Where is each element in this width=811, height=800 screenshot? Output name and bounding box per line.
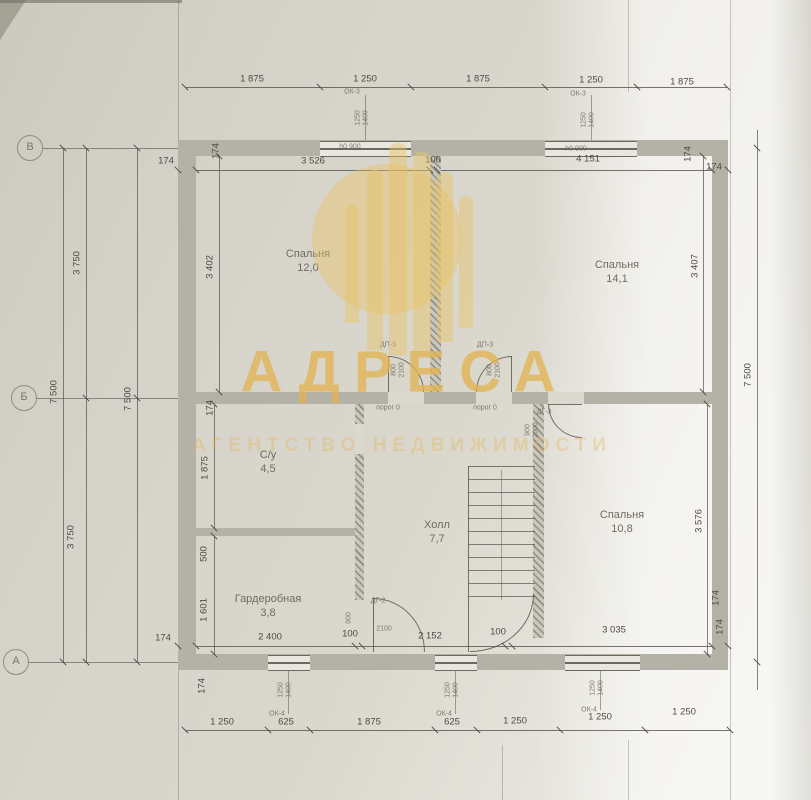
door-swing-arc xyxy=(548,404,582,438)
opening-annotation: h0 900 xyxy=(339,144,360,151)
dimension-label: 1 875 xyxy=(357,717,381,728)
opening-annotation: ОК-3 xyxy=(570,91,586,98)
room-name: Спальня xyxy=(595,258,639,272)
plan-line xyxy=(219,156,220,404)
plan-line xyxy=(86,148,87,662)
plan-line xyxy=(707,404,708,654)
room-name: Спальня xyxy=(600,508,644,522)
dimension-label: 3 526 xyxy=(301,156,325,167)
room-name: Холл xyxy=(424,518,450,532)
opening-annotation: ОК-4 xyxy=(581,707,597,714)
opening-annotation: ОК-3 xyxy=(344,89,360,96)
dimension-label: 3 407 xyxy=(690,254,701,278)
wall xyxy=(196,528,364,536)
dimension-label: 174 xyxy=(155,633,171,644)
plan-line xyxy=(178,646,728,647)
opening-annotation: 1250 xyxy=(581,112,588,128)
dimension-label: 174 xyxy=(158,156,174,167)
dimension-label: 1 250 xyxy=(672,707,696,718)
room-name: Гардеробная xyxy=(235,592,302,606)
dimension-label: 1 250 xyxy=(579,75,603,86)
dimension-label: 3 402 xyxy=(205,255,216,279)
room-area: 4,5 xyxy=(260,462,277,476)
room-label: Спальня10,8 xyxy=(600,508,644,536)
dimension-label: 174 xyxy=(205,400,216,416)
opening-annotation: 2100 xyxy=(376,626,392,633)
dimension-label: 1 875 xyxy=(466,74,490,85)
dimension-label: 625 xyxy=(444,717,460,728)
watermark-subtitle: АГЕНТСТВО НЕДВИЖИМОСТИ xyxy=(192,435,612,457)
room-area: 7,7 xyxy=(424,532,450,546)
plan-line xyxy=(185,87,727,88)
dimension-label: 1 875 xyxy=(240,74,264,85)
dimension-label: 3 750 xyxy=(72,251,83,275)
room-area: 10,8 xyxy=(600,522,644,536)
axis-marker: В xyxy=(17,135,43,161)
dimension-label: 1 250 xyxy=(503,716,527,727)
room-area: 3,8 xyxy=(235,606,302,620)
dimension-label: 1 601 xyxy=(199,598,210,622)
opening-annotation: 1400 xyxy=(286,682,293,698)
dimension-label: 7 500 xyxy=(123,387,134,411)
watermark-logo-bar xyxy=(389,143,407,355)
dimension-label: 174 xyxy=(706,162,722,173)
room-label: Спальня14,1 xyxy=(595,258,639,286)
watermark-logo-bar xyxy=(459,196,473,328)
plan-line xyxy=(178,170,728,171)
plan-line xyxy=(37,398,196,399)
dimension-label: 2 400 xyxy=(258,632,282,643)
opening-annotation: порог 0 xyxy=(376,405,400,412)
plan-line xyxy=(730,0,731,800)
opening-annotation: 1400 xyxy=(453,682,460,698)
dimension-label: 174 xyxy=(211,143,222,159)
dimension-label: 174 xyxy=(715,619,726,635)
watermark-logo-bar xyxy=(437,172,453,342)
dimension-label: 3 035 xyxy=(602,625,626,636)
plan-line xyxy=(703,156,704,392)
opening-annotation: 1400 xyxy=(598,680,605,696)
plan-line xyxy=(628,0,629,92)
plan-line xyxy=(757,130,758,690)
opening-annotation: ОК-4 xyxy=(269,711,285,718)
wall xyxy=(178,140,728,156)
opening-annotation: 1250 xyxy=(590,680,597,696)
plan-line xyxy=(63,148,64,662)
dimension-label: 1 250 xyxy=(353,74,377,85)
plan-line xyxy=(137,148,138,662)
dimension-label: 100 xyxy=(342,629,358,640)
dimension-label: 2 152 xyxy=(418,631,442,642)
opening-annotation: порог 0 xyxy=(473,405,497,412)
window xyxy=(565,655,640,671)
opening-annotation: 1400 xyxy=(589,112,596,128)
opening-annotation: 1250 xyxy=(445,682,452,698)
opening-annotation: 900 xyxy=(346,612,353,624)
watermark-logo-bar xyxy=(413,152,431,352)
dimension-label: 1 875 xyxy=(200,456,211,480)
room-label: Гардеробная3,8 xyxy=(235,592,302,620)
dimension-label: 7 500 xyxy=(49,380,60,404)
opening-annotation: 1250 xyxy=(278,682,285,698)
staircase xyxy=(468,466,535,607)
plan-line xyxy=(29,662,178,663)
opening-annotation: 1250 xyxy=(355,110,362,126)
window xyxy=(435,655,477,671)
window xyxy=(268,655,310,671)
dimension-label: 625 xyxy=(278,717,294,728)
dimension-label: 4 151 xyxy=(576,154,600,165)
plan-line xyxy=(502,745,503,800)
opening-annotation: ДГ-3 xyxy=(537,409,552,416)
dimension-label: 3 576 xyxy=(694,509,705,533)
watermark-logo-bar xyxy=(367,170,383,350)
dimension-label: 7 500 xyxy=(743,363,754,387)
watermark-title: АДРЕСА xyxy=(240,339,569,406)
axis-marker: А xyxy=(3,649,29,675)
dimension-label: 174 xyxy=(197,678,208,694)
dimension-label: 1 250 xyxy=(210,717,234,728)
opening-annotation: 1400 xyxy=(363,110,370,126)
axis-marker: Б xyxy=(11,385,37,411)
dimension-label: 174 xyxy=(711,590,722,606)
opening-annotation: h0 900 xyxy=(565,146,586,153)
room-area: 14,1 xyxy=(595,272,639,286)
opening-annotation: ДГ-2 xyxy=(371,598,386,605)
opening-annotation: ОК-4 xyxy=(436,711,452,718)
dimension-label: 100 xyxy=(490,627,506,638)
dimension-label: 174 xyxy=(683,146,694,162)
dimension-label: 3 750 xyxy=(66,525,77,549)
wall xyxy=(178,140,196,670)
plan-line xyxy=(628,740,629,800)
watermark-logo-bar xyxy=(345,205,359,323)
dimension-label: 500 xyxy=(199,546,210,562)
floor-plan-photo: 1 8751 2501 8751 2501 8751741743 5261004… xyxy=(0,0,811,800)
dimension-label: 1 875 xyxy=(670,77,694,88)
room-label: Холл7,7 xyxy=(424,518,450,546)
